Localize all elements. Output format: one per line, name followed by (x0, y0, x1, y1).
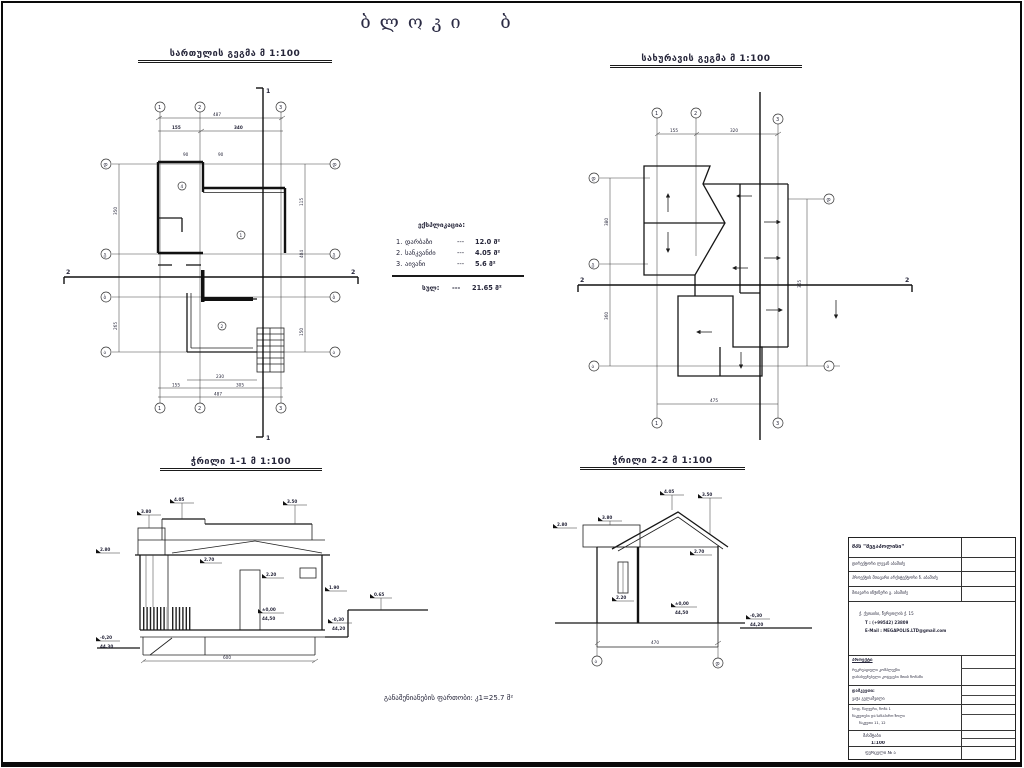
site-line: ნაკვეთები და სანაპირო ზოლი (852, 714, 905, 718)
svg-text:1: 1 (158, 406, 161, 412)
svg-text:230: 230 (216, 374, 224, 379)
svg-text:365: 365 (797, 280, 802, 288)
svg-text:დ: დ (333, 162, 337, 168)
svg-text:360: 360 (604, 312, 609, 320)
floor-plan-axis-bubbles: 1 2 3 1 2 3 დ გ ბ ა დ გ ბ ა (101, 102, 340, 413)
floor-plan-title: სართულის გეგმა მ 1:100 (138, 49, 332, 63)
title-block-row: მთავარი ინჟინერი გ. აბაშიძე (852, 590, 908, 595)
svg-text:2: 2 (694, 111, 697, 117)
client-name: ვაჟა გელაშვილი (852, 696, 885, 701)
svg-text:2.80: 2.80 (100, 547, 110, 552)
svg-text:გ: გ (104, 252, 107, 258)
svg-text:600: 600 (223, 655, 231, 660)
explication-row: 2. სანკვანძი --- 4.05 მ² (396, 249, 534, 257)
title-block-row: დირექტორი ლევან აბაშიძე (852, 561, 905, 566)
company-email: E-Mail : MEGAPOLIS.LTD@gmail.com (865, 628, 946, 633)
title-block-line (849, 685, 1015, 686)
roof-plan-drawing: 1 2 3 1 3 დ გ ა დ ა (575, 85, 925, 445)
svg-text:2: 2 (198, 406, 201, 412)
svg-text:115: 115 (299, 198, 304, 206)
title-block-row: პროექტის მთავარი არქიტექტორი ნ. აბაშიძე (852, 575, 938, 580)
svg-text:-0,30: -0,30 (332, 617, 344, 622)
svg-text:155: 155 (172, 383, 180, 388)
svg-text:340: 340 (234, 125, 243, 130)
title-block-line (849, 557, 1015, 558)
explication-row: 1. დარბაზი --- 12.0 მ² (396, 238, 534, 246)
svg-text:350: 350 (113, 207, 118, 215)
explication-row: 3. აივანი --- 5.6 მ² (396, 260, 534, 268)
title-block-subline (961, 714, 1015, 715)
svg-text:487: 487 (214, 392, 222, 397)
roof-plan-slope-arrows (668, 194, 836, 368)
roof-plan-title: სახურავის გეგმა მ 1:100 (610, 54, 802, 68)
svg-text:265: 265 (113, 322, 118, 330)
svg-text:1.90: 1.90 (329, 585, 339, 590)
title-block-subline (961, 738, 1015, 739)
svg-text:4.05: 4.05 (664, 489, 674, 494)
section-2-2-elevation-marks: 2.80 3.80 4.05 3.50 2.70 2.20 ±0,00 44,5… (553, 489, 770, 627)
title-block: შპს "მეგაპოლისი" დირექტორი ლევან აბაშიძე… (848, 537, 1016, 760)
section-1-1-dimension: 600 (141, 655, 318, 663)
roof-plan-outline (644, 166, 788, 376)
scale-label: მასშტაბი (863, 733, 881, 738)
title-block-line (849, 655, 1015, 656)
sheet-number: ფურცელი № ა (865, 751, 896, 756)
site-line: სოფ. წაღვერი, ზონა 1 (852, 707, 891, 711)
svg-text:-0,20: -0,20 (100, 635, 112, 640)
svg-text:გ: გ (592, 262, 595, 268)
section-2-2-drawing: ა დ 2.80 3.80 4.05 3.50 2.70 2.20 ±0,00 … (550, 475, 830, 680)
svg-text:155: 155 (670, 128, 678, 133)
svg-text:90: 90 (218, 152, 224, 157)
svg-text:3: 3 (279, 105, 282, 111)
svg-text:დ: დ (104, 162, 108, 168)
svg-text:3: 3 (776, 117, 779, 123)
project-label: პროექტი (852, 658, 873, 663)
svg-text:44,30: 44,30 (100, 644, 113, 649)
roof-plan-axis-bubbles: 1 2 3 1 3 დ გ ა დ ა (589, 108, 834, 428)
svg-text:44,20: 44,20 (750, 622, 763, 627)
title-block-subline (961, 695, 1015, 696)
floor-plan-dimensions: 487 155 340 90 90 230 155 305 487 350 26… (113, 112, 305, 397)
built-up-area-note: განაშენიანების ფართობი: კ1=25.7 მ² (384, 694, 513, 702)
svg-text:380: 380 (604, 218, 609, 226)
company-address: ქ. ქუთაისი, წერეთლის ქ. 15 (859, 611, 914, 616)
svg-text:დ: დ (827, 197, 831, 203)
svg-text:2: 2 (351, 269, 355, 276)
svg-text:487: 487 (213, 112, 221, 117)
title-block-line (849, 586, 1015, 587)
roof-plan-dimensions: 155 320 475 380 360 365 (604, 128, 802, 404)
roof-plan-section-lines: 2 2 (578, 92, 912, 440)
title-block-line (849, 571, 1015, 572)
svg-text:1: 1 (655, 421, 658, 427)
title-block-column (961, 655, 962, 759)
svg-text:150: 150 (299, 328, 304, 336)
title-block-line (849, 730, 1015, 731)
svg-text:44,20: 44,20 (332, 626, 345, 631)
svg-text:90: 90 (183, 152, 189, 157)
svg-text:3: 3 (279, 406, 282, 412)
svg-text:320: 320 (730, 128, 738, 133)
floor-plan-room-tags: 4 1 2 (178, 182, 245, 330)
section-1-1-structure (97, 519, 428, 655)
section-1-1-title: ჭრილი 1-1 მ 1:100 (160, 457, 322, 471)
scale-value: 1:100 (871, 741, 885, 746)
title-block-line (849, 601, 1015, 602)
svg-text:3.80: 3.80 (602, 515, 612, 520)
svg-text:4.05: 4.05 (174, 497, 184, 502)
svg-text:2.70: 2.70 (204, 557, 214, 562)
section-2-2-structure (555, 512, 812, 647)
svg-text:3.80: 3.80 (141, 509, 151, 514)
explication-table: ექსპლიკაცია: 1. დარბაზი --- 12.0 მ² 2. ს… (396, 221, 534, 292)
svg-text:3.50: 3.50 (287, 499, 297, 504)
client-label: დამკვეთი: (852, 688, 875, 693)
svg-text:2.80: 2.80 (557, 522, 567, 527)
svg-text:3.50: 3.50 (702, 492, 712, 497)
svg-text:1: 1 (266, 435, 270, 442)
svg-text:2.20: 2.20 (266, 572, 276, 577)
svg-text:404: 404 (299, 250, 304, 258)
svg-text:2.20: 2.20 (616, 595, 626, 600)
floor-plan-drawing: 1 2 3 1 2 3 დ გ ბ ა დ გ ბ ა 487 155 340 … (60, 80, 365, 450)
explication-total: სულ: --- 21.65 მ² (422, 284, 534, 292)
explication-divider (392, 275, 524, 277)
title-block-column (961, 538, 962, 601)
svg-text:გ: გ (333, 252, 336, 258)
section-2-2-title: ჭრილი 2-2 მ 1:100 (580, 456, 745, 470)
explication-title: ექსპლიკაცია: (418, 221, 534, 229)
svg-text:155: 155 (172, 125, 181, 130)
svg-text:305: 305 (236, 383, 244, 388)
section-2-2-axis-bubbles: ა დ (592, 647, 723, 668)
svg-text:-0,30: -0,30 (750, 613, 762, 618)
svg-text:2: 2 (66, 269, 70, 276)
svg-text:1: 1 (158, 105, 161, 111)
svg-text:2: 2 (221, 324, 224, 329)
svg-text:±0,00: ±0,00 (675, 601, 689, 606)
title-block-subline (961, 668, 1015, 669)
title-block-line (849, 746, 1015, 747)
svg-text:2.70: 2.70 (694, 549, 704, 554)
svg-text:0.65: 0.65 (374, 592, 384, 597)
svg-text:1: 1 (240, 233, 243, 238)
project-line: რეკრეაციული კომპლექსი (852, 667, 900, 672)
svg-text:დ: დ (716, 661, 720, 667)
svg-text:2: 2 (198, 105, 201, 111)
svg-text:2: 2 (580, 277, 584, 284)
svg-text:1: 1 (266, 88, 270, 95)
svg-text:ბ: ბ (104, 294, 107, 301)
svg-text:44,50: 44,50 (262, 616, 275, 621)
svg-text:4: 4 (181, 184, 184, 189)
project-line: დასასვენებელი კოტეჯები მთის ზონაში (852, 674, 923, 679)
page-title: ბლოკი ბ (280, 12, 600, 33)
floor-plan-staircase (257, 328, 284, 372)
svg-text:±0,00: ±0,00 (262, 607, 276, 612)
svg-text:ბ: ბ (333, 294, 336, 301)
svg-text:475: 475 (710, 398, 718, 403)
svg-text:470: 470 (651, 640, 659, 645)
svg-text:44,50: 44,50 (675, 610, 688, 615)
company-phone: T : (+99542) 23809 (865, 620, 908, 625)
company-name: შპს "მეგაპოლისი" (852, 544, 904, 550)
drawing-sheet: ბლოკი ბ სართულის გეგმა მ 1:100 სახურავის… (0, 0, 1024, 768)
svg-text:2: 2 (905, 277, 909, 284)
section-2-2-dimension: 470 (595, 640, 721, 645)
site-line: ნაკვეთი 11, 12 (859, 721, 886, 725)
section-1-1-drawing: 2.80 3.80 4.05 3.50 2.70 2.20 1.90 0.65 … (95, 480, 440, 675)
svg-text:1: 1 (655, 111, 658, 117)
title-block-line (849, 704, 1015, 705)
floor-plan-section-lines: 1 1 2 2 (64, 88, 358, 442)
svg-text:დ: დ (592, 176, 596, 182)
svg-text:3: 3 (776, 421, 779, 427)
